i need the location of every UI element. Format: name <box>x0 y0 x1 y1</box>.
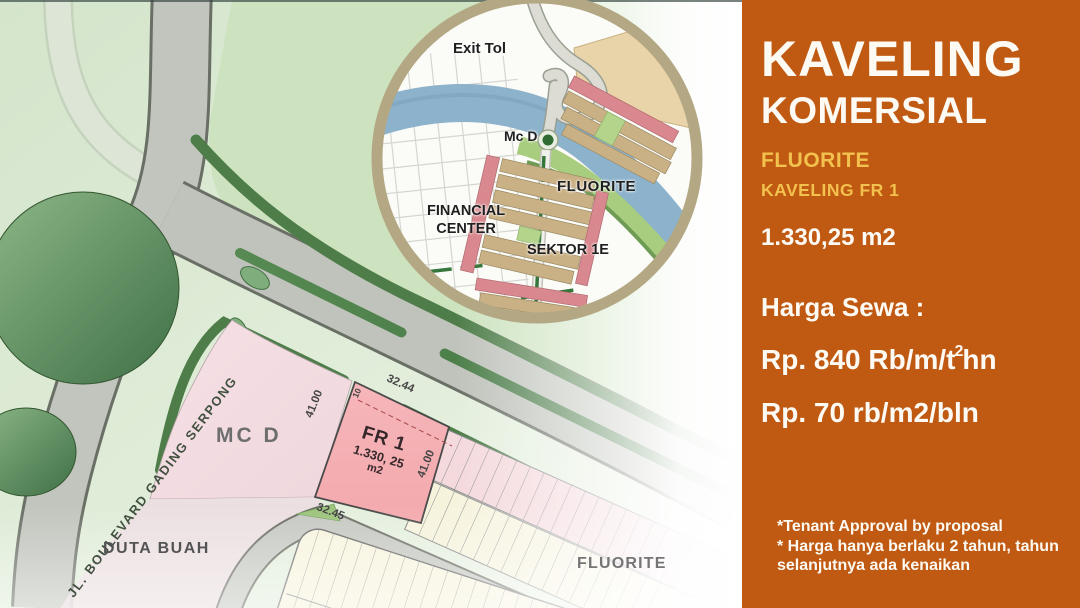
panel-price-monthly: Rp. 70 rb/m2/bln <box>761 397 1064 429</box>
location-inset-graphic <box>369 0 705 326</box>
price-yearly-superscript: 2 <box>954 343 963 360</box>
price-yearly-text-end: hn <box>962 344 996 375</box>
panel-title-line1: KAVELING <box>761 34 1064 84</box>
panel-title-line2: KOMERSIAL <box>761 91 1064 132</box>
panel-subtitle-area: FLUORITE <box>761 149 1064 173</box>
info-panel: KAVELING KOMERSIAL FLUORITE KAVELING FR … <box>742 0 1080 608</box>
inset-financial-center-label: FINANCIAL CENTER <box>427 202 505 238</box>
panel-note-1: *Tenant Approval by proposal <box>777 517 1079 536</box>
location-inset: Exit Tol Mc D FLUORITE FINANCIAL CENTER … <box>369 0 705 326</box>
panel-price-yearly: Rp. 840 Rb/m/t2hn <box>761 344 1064 376</box>
inset-exit-tol-label: Exit Tol <box>453 40 506 57</box>
mcd-area-label: MC D <box>216 424 282 448</box>
price-yearly-text: Rp. 840 Rb/m/t <box>761 344 955 375</box>
panel-note-2: * Harga hanya berlaku 2 tahun, tahun sel… <box>777 537 1079 575</box>
kaveling-flyer: JL. BOULEVARD GADING SERPONG MC D DUTA B… <box>0 0 1080 608</box>
inset-fluorite-label: FLUORITE <box>557 178 636 195</box>
panel-subtitle-plot: KAVELING FR 1 <box>761 180 1064 201</box>
fluorite-area-label: FLUORITE <box>577 555 667 573</box>
panel-plot-size: 1.330,25 m2 <box>761 224 1064 252</box>
duta-buah-label: DUTA BUAH <box>103 540 210 558</box>
inset-sektor-1e-label: SEKTOR 1E <box>527 242 609 258</box>
inset-mcd-label: Mc D <box>504 128 537 144</box>
panel-price-heading: Harga Sewa : <box>761 292 1064 323</box>
panel-notes: *Tenant Approval by proposal * Harga han… <box>777 517 1079 577</box>
